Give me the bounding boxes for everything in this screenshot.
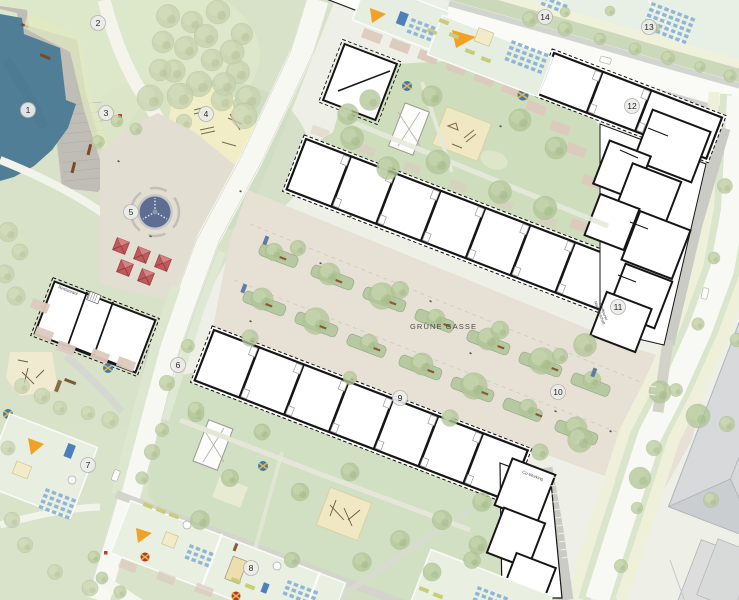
svg-text:8: 8	[249, 563, 254, 573]
svg-text:10: 10	[553, 387, 563, 397]
svg-text:4: 4	[204, 109, 209, 119]
svg-text:11: 11	[614, 302, 623, 312]
svg-text:5: 5	[129, 207, 134, 217]
svg-text:1: 1	[26, 105, 31, 115]
svg-text:14: 14	[540, 12, 550, 22]
svg-text:GRÜNE GASSE: GRÜNE GASSE	[410, 322, 477, 331]
svg-text:9: 9	[398, 393, 403, 403]
svg-text:2: 2	[96, 18, 101, 28]
svg-text:3: 3	[104, 108, 109, 118]
svg-text:13: 13	[644, 22, 654, 32]
svg-text:12: 12	[627, 101, 637, 111]
svg-text:6: 6	[176, 360, 181, 370]
svg-text:7: 7	[86, 460, 91, 470]
